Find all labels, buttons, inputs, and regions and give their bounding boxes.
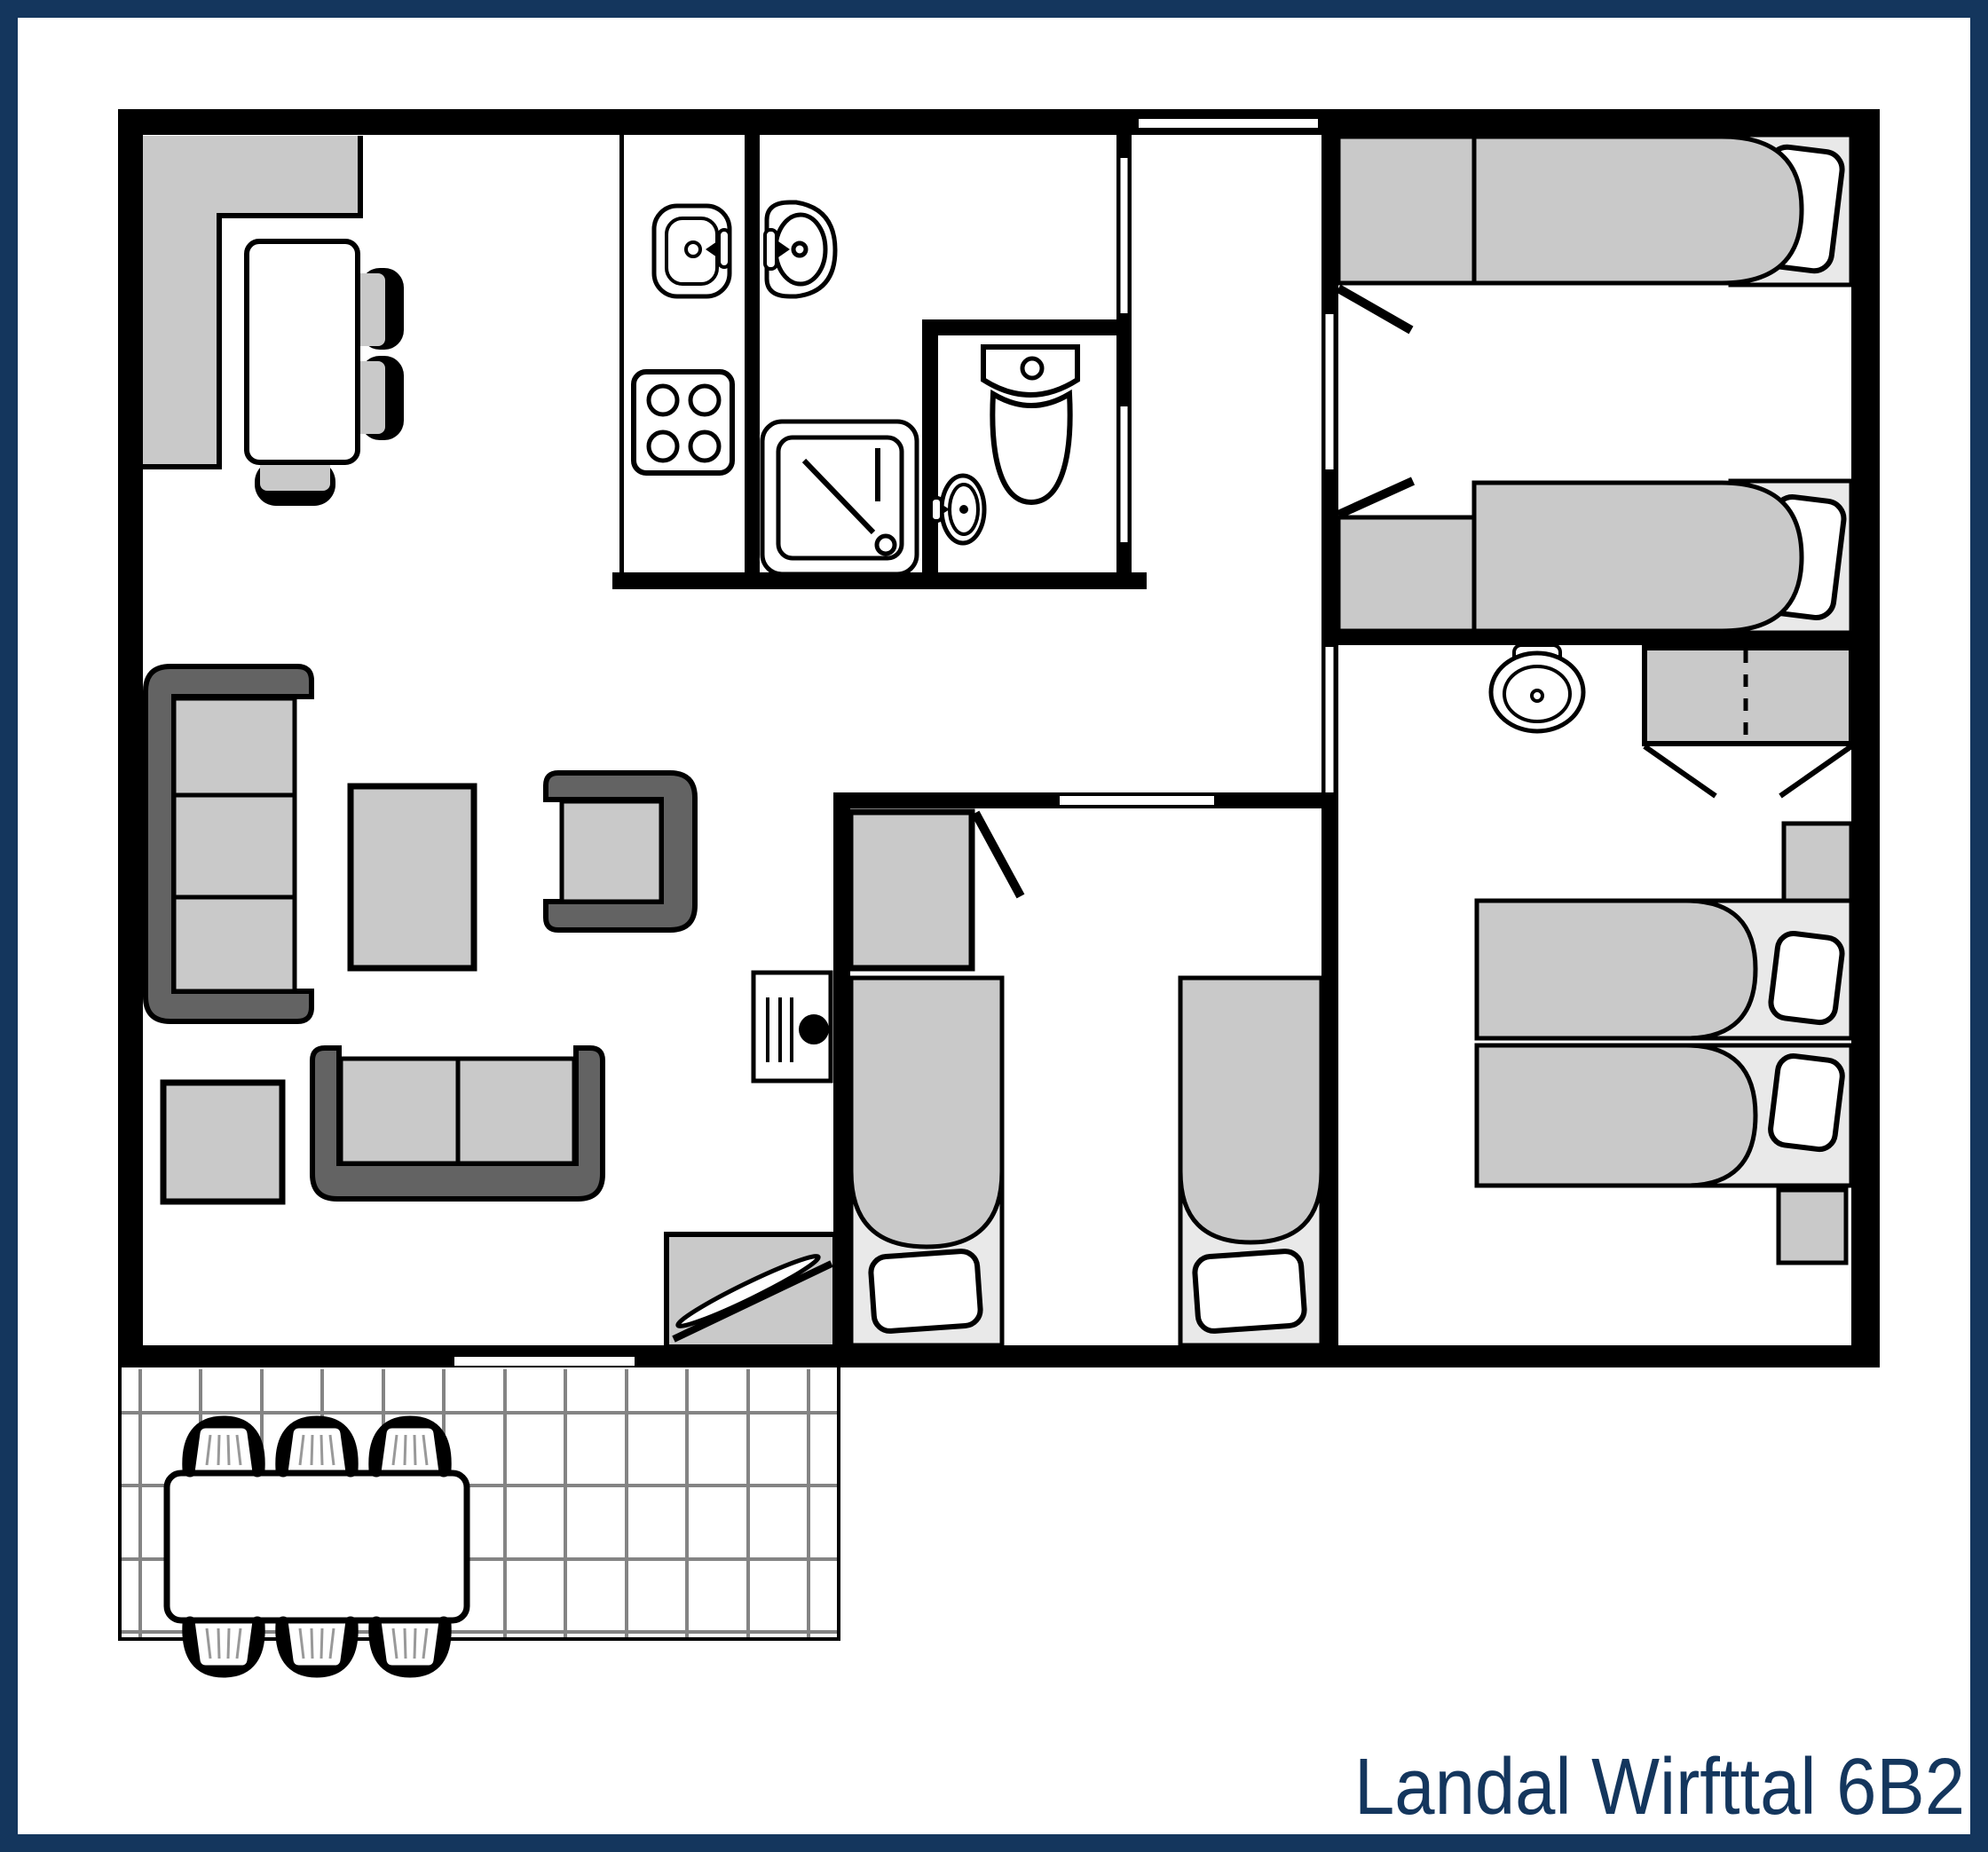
svg-text:Landal Wirfttal 6B2: Landal Wirfttal 6B2 <box>1354 1743 1965 1832</box>
